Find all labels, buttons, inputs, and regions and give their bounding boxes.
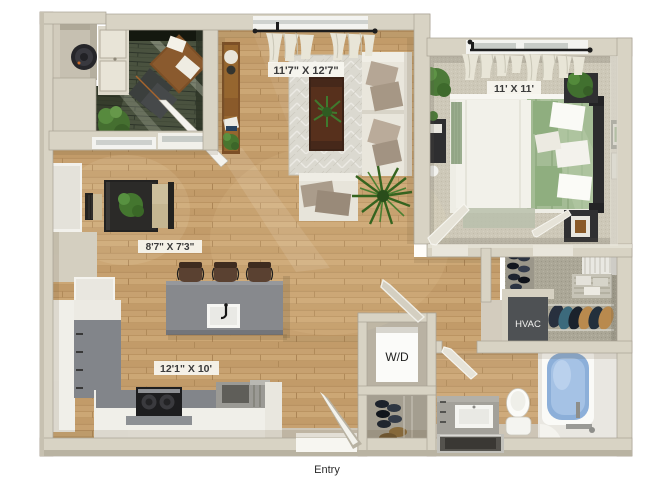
svg-text:HVAC: HVAC [515, 319, 541, 330]
svg-text:Entry: Entry [314, 464, 340, 476]
svg-text:W/D: W/D [385, 350, 409, 364]
svg-text:8'7" X 7'3": 8'7" X 7'3" [146, 242, 195, 253]
svg-text:12'1" X 10': 12'1" X 10' [160, 363, 212, 375]
svg-text:11' X 11': 11' X 11' [494, 83, 534, 95]
svg-text:11'7" X 12'7": 11'7" X 12'7" [273, 65, 338, 77]
